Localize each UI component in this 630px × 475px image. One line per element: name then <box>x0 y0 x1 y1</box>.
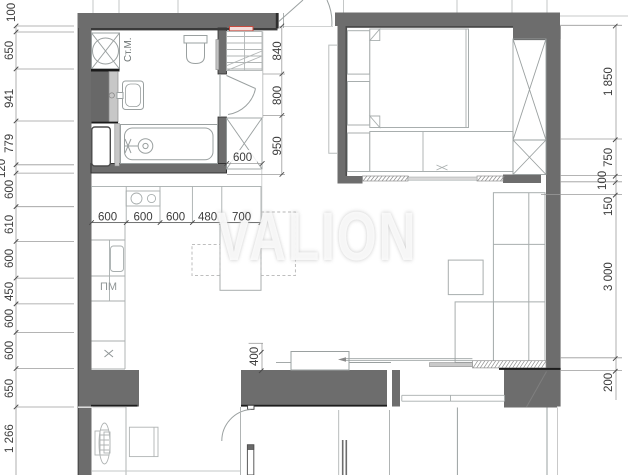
svg-text:600: 600 <box>4 249 16 268</box>
svg-text:700: 700 <box>232 212 251 224</box>
svg-text:600: 600 <box>233 152 252 164</box>
svg-text:600: 600 <box>98 212 117 224</box>
svg-text:1 266: 1 266 <box>4 424 16 453</box>
svg-text:600: 600 <box>166 212 185 224</box>
svg-text:Ст.М.: Ст.М. <box>123 37 134 62</box>
svg-text:600: 600 <box>4 309 16 328</box>
svg-text:400: 400 <box>249 347 261 366</box>
svg-text:100: 100 <box>6 3 18 22</box>
svg-text:1 850: 1 850 <box>603 67 615 96</box>
svg-text:480: 480 <box>198 212 217 224</box>
svg-text:800: 800 <box>272 86 284 105</box>
svg-text:650: 650 <box>4 379 16 398</box>
svg-text:840: 840 <box>272 41 284 60</box>
svg-text:650: 650 <box>4 41 16 60</box>
svg-text:100: 100 <box>597 171 609 190</box>
svg-text:950: 950 <box>272 136 284 155</box>
svg-text:750: 750 <box>603 148 615 167</box>
svg-text:941: 941 <box>4 89 16 108</box>
svg-text:120: 120 <box>0 159 8 178</box>
svg-text:610: 610 <box>4 215 16 234</box>
svg-text:VALION: VALION <box>217 198 418 275</box>
svg-text:600: 600 <box>4 341 16 360</box>
svg-text:200: 200 <box>603 373 615 392</box>
svg-text:600: 600 <box>4 180 16 199</box>
svg-text:779: 779 <box>4 134 16 153</box>
svg-text:600: 600 <box>134 212 153 224</box>
svg-text:3 000: 3 000 <box>603 262 615 291</box>
svg-text:450: 450 <box>4 282 16 301</box>
svg-text:ПМ: ПМ <box>100 281 117 293</box>
svg-text:150: 150 <box>603 197 615 216</box>
